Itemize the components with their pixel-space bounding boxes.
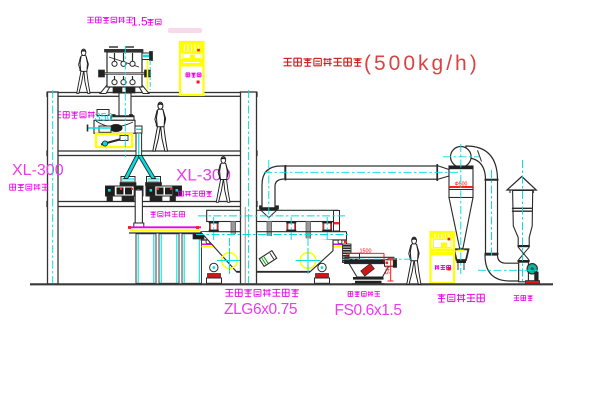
svg-text:1.5: 1.5 [131, 15, 148, 29]
svg-text:(500kg/h): (500kg/h) [364, 52, 480, 75]
svg-text:350: 350 [95, 112, 113, 124]
svg-text:FS0.6x1.5: FS0.6x1.5 [335, 302, 402, 319]
svg-text:ZLG6x0.75: ZLG6x0.75 [224, 301, 297, 318]
svg-text:540: 540 [386, 266, 392, 275]
svg-text:XL-300: XL-300 [12, 162, 64, 179]
svg-text:1500: 1500 [360, 248, 372, 254]
